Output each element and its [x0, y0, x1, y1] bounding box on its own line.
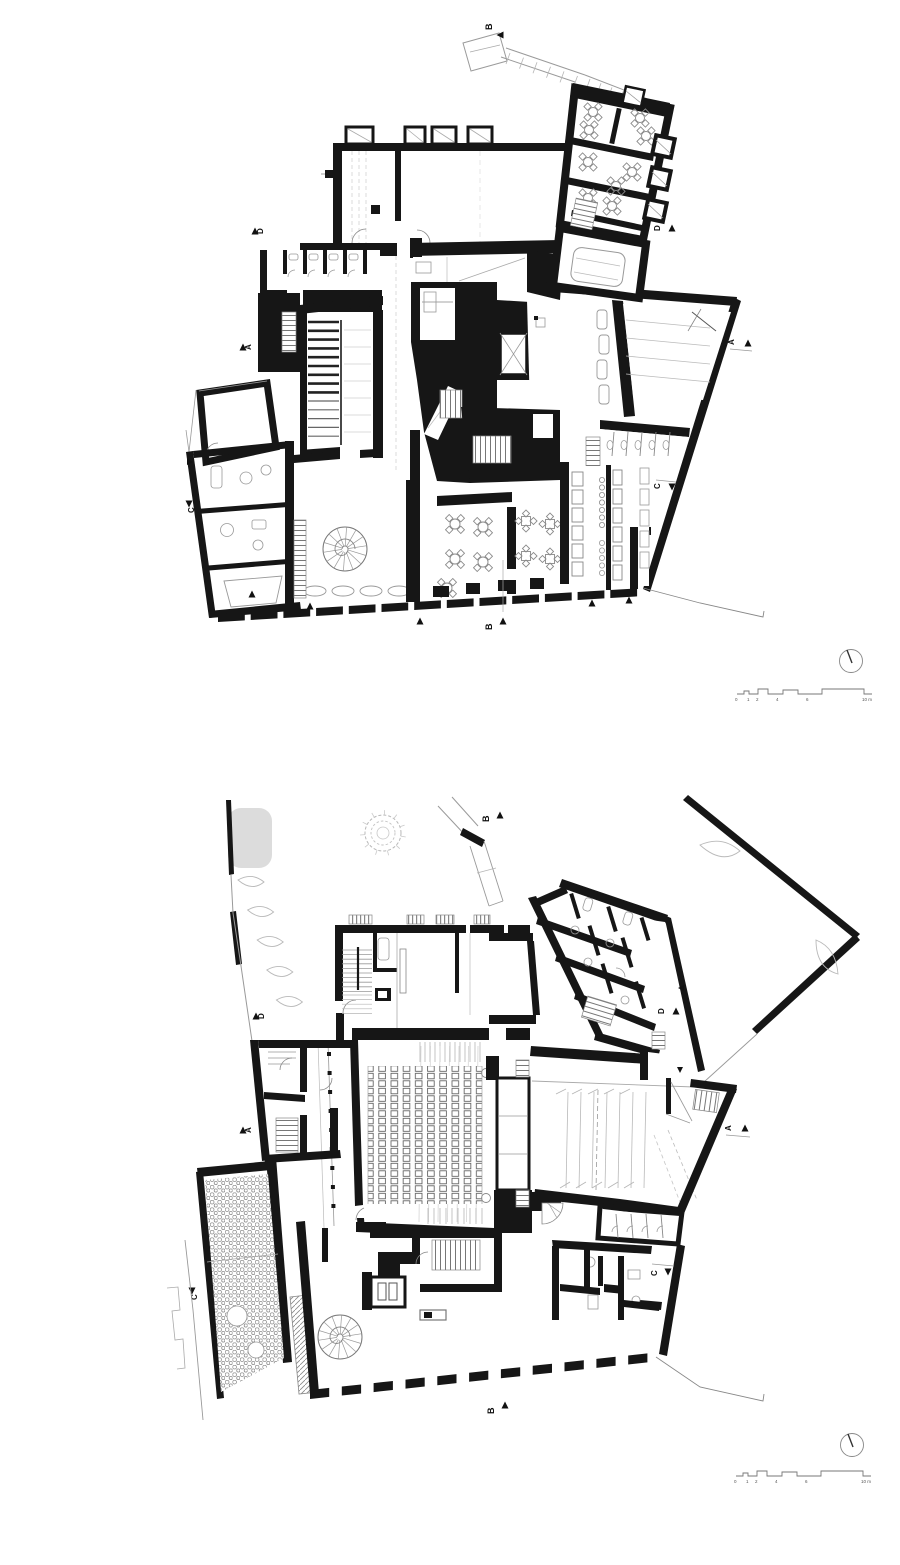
svg-text:10 m: 10 m	[862, 697, 872, 702]
svg-text:D: D	[257, 1013, 266, 1019]
svg-text:C: C	[653, 483, 662, 489]
svg-text:B: B	[481, 815, 491, 822]
svg-text:A: A	[727, 339, 736, 345]
svg-text:C: C	[187, 507, 196, 513]
svg-text:D: D	[657, 1008, 666, 1014]
svg-text:A: A	[244, 1127, 253, 1133]
svg-text:A: A	[724, 1125, 733, 1131]
svg-text:D: D	[256, 228, 265, 234]
svg-text:D: D	[653, 225, 662, 231]
svg-text:B: B	[484, 623, 494, 630]
svg-text:B: B	[486, 1407, 496, 1414]
svg-text:B: B	[484, 23, 494, 30]
svg-text:A: A	[244, 344, 253, 350]
svg-text:10 m: 10 m	[861, 1479, 871, 1484]
svg-text:C: C	[650, 1270, 659, 1276]
